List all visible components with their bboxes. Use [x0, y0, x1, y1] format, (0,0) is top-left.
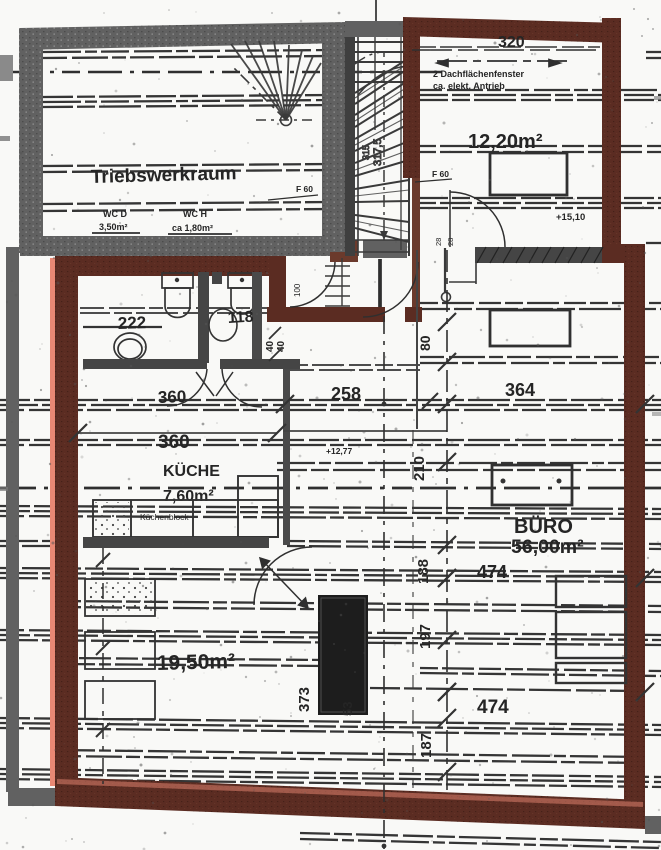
svg-text:KÜCHE: KÜCHE — [163, 461, 220, 480]
svg-text:ca. elekt. Antrieb: ca. elekt. Antrieb — [433, 81, 505, 91]
svg-text:40: 40 — [265, 340, 276, 352]
svg-text:474: 474 — [477, 562, 507, 582]
svg-text:320: 320 — [498, 34, 525, 51]
svg-text:28: 28 — [434, 238, 443, 246]
svg-text:19,50m²: 19,50m² — [157, 650, 236, 675]
svg-text:2 Dachflächenfenster: 2 Dachflächenfenster — [433, 69, 525, 79]
svg-text:360: 360 — [158, 387, 187, 407]
svg-text:197: 197 — [417, 624, 434, 649]
svg-text:40: 40 — [276, 340, 287, 352]
svg-text:474: 474 — [477, 697, 509, 718]
svg-text:317,5: 317,5 — [372, 138, 384, 166]
svg-text:80: 80 — [417, 335, 433, 351]
svg-text:360: 360 — [158, 432, 190, 453]
svg-text:188: 188 — [415, 559, 432, 584]
svg-text:F 60: F 60 — [432, 169, 449, 179]
svg-text:364: 364 — [505, 380, 535, 400]
svg-text:210: 210 — [411, 456, 428, 481]
svg-text:3,50m²: 3,50m² — [99, 222, 128, 232]
svg-text:+15,10: +15,10 — [556, 212, 585, 223]
svg-text:WC H: WC H — [183, 209, 207, 219]
svg-text:100: 100 — [293, 283, 302, 297]
svg-text:56,00m²: 56,00m² — [511, 536, 584, 558]
svg-text:ca 1,80m²: ca 1,80m² — [172, 223, 213, 233]
svg-text:WC D: WC D — [103, 209, 127, 219]
svg-text:BÜRO: BÜRO — [514, 515, 573, 538]
svg-text:222: 222 — [117, 313, 146, 333]
svg-text:F 60: F 60 — [296, 184, 313, 194]
svg-text:Triebswerkraum: Triebswerkraum — [91, 163, 237, 188]
svg-text:7,60m²: 7,60m² — [163, 488, 214, 505]
svg-text:187: 187 — [418, 733, 435, 758]
svg-text:12,20m²: 12,20m² — [468, 131, 543, 153]
svg-text:118: 118 — [227, 309, 254, 327]
svg-text:+12,77: +12,77 — [326, 446, 353, 456]
svg-text:Küchenblock: Küchenblock — [140, 512, 189, 522]
svg-text:53: 53 — [340, 702, 355, 716]
svg-text:373: 373 — [296, 687, 313, 712]
svg-text:315: 315 — [361, 145, 371, 160]
svg-text:258: 258 — [331, 384, 361, 404]
